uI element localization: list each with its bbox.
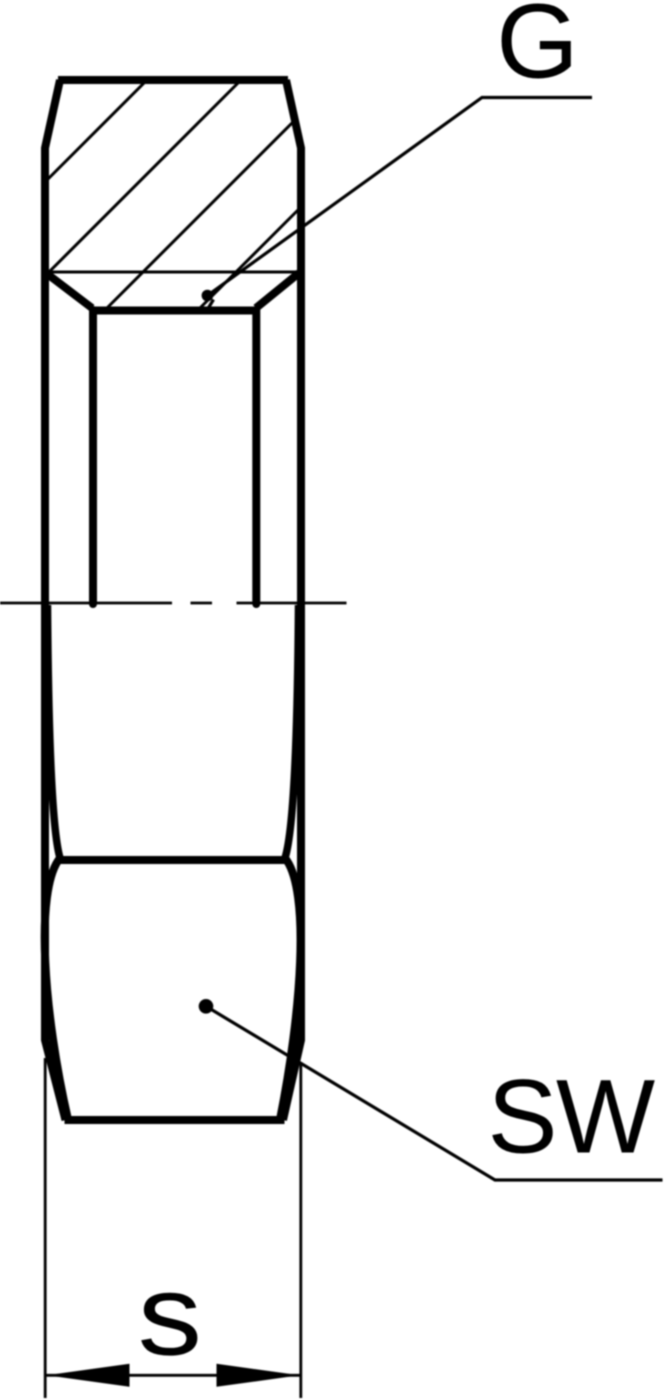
svg-text:G: G [496, 0, 578, 101]
svg-text:s: s [138, 1250, 202, 1379]
svg-text:SW: SW [488, 1059, 656, 1176]
